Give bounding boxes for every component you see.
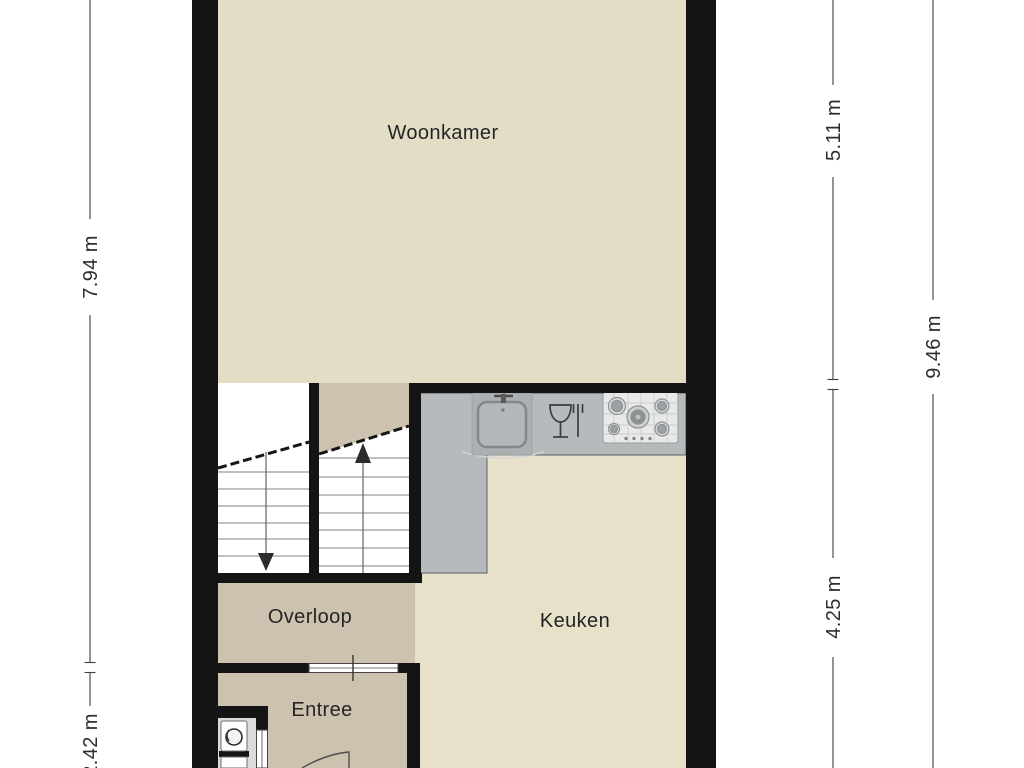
floorplan-svg: Woonkamer Overloop Keuken Entree 7.94 m … <box>0 0 1024 768</box>
wall-wc-jamb <box>256 706 268 730</box>
dim-right-top-label: 5.11 m <box>823 99 845 161</box>
wc-basin-icon <box>221 757 247 768</box>
entree-label: Entree <box>291 699 352 721</box>
toilet-icon <box>221 721 247 751</box>
dim-left-bottom-label: 2.42 m <box>80 713 102 768</box>
woonkamer-label: Woonkamer <box>387 122 498 144</box>
wall-outer-right <box>686 0 716 768</box>
wall-entree-right <box>407 663 420 768</box>
keuken-label: Keuken <box>540 610 610 632</box>
overloop-label: Overloop <box>268 606 352 628</box>
staircase-down <box>218 383 309 573</box>
floorplan-canvas: Woonkamer Overloop Keuken Entree 7.94 m … <box>0 0 1024 768</box>
wall-under-stairs <box>218 573 422 583</box>
wc-fixtures <box>221 721 247 768</box>
dim-right-total-label: 9.46 m <box>923 315 945 379</box>
wall-kitchen-top <box>409 383 690 393</box>
wc-door <box>257 730 268 768</box>
dim-left-total-label: 7.94 m <box>80 235 102 299</box>
faucet-body <box>501 394 506 403</box>
sink-drain <box>501 408 504 411</box>
sink-basin <box>478 402 526 447</box>
stairwell-void <box>218 383 309 573</box>
woonkamer-floor <box>218 0 690 383</box>
wall-stair-divider <box>309 383 319 573</box>
sink-icon <box>472 393 532 455</box>
stove-icon <box>603 392 678 443</box>
wall-outer-left <box>192 0 218 768</box>
wall-stair-right <box>409 383 421 583</box>
wall-overloop-entree <box>218 663 309 673</box>
dim-right-bottom-label: 4.25 m <box>823 575 845 639</box>
wall-wc-fixture-gap <box>219 751 249 757</box>
